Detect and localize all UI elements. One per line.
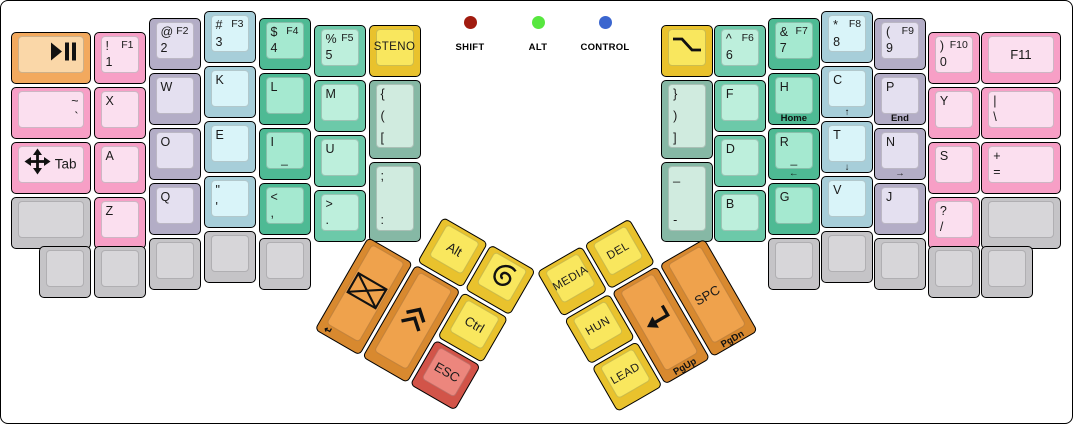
keycap-top: *F88 xyxy=(828,15,866,52)
key-legend: T xyxy=(833,129,841,142)
key-legend: ' xyxy=(216,201,218,214)
swirl-icon xyxy=(481,253,526,295)
keycap-top: HUN xyxy=(572,300,623,351)
key-i[interactable]: I_ xyxy=(259,128,311,180)
key-blank-right[interactable] xyxy=(981,197,1061,249)
key-legend: % xyxy=(326,33,337,46)
key-r[interactable]: R_← xyxy=(768,128,820,180)
key-blank-br-4[interactable] xyxy=(928,246,980,298)
key-steno[interactable]: STENO xyxy=(369,25,421,77)
key-legend: ^ xyxy=(726,33,732,46)
key-legend: + xyxy=(993,150,1000,163)
key-legend: F7 xyxy=(796,26,808,37)
key-legend: & xyxy=(780,26,788,39)
key-v[interactable]: V xyxy=(821,176,873,228)
keycap-top: X xyxy=(101,91,139,128)
key-j[interactable]: J xyxy=(874,183,926,235)
keycap-top: I_ xyxy=(266,132,304,169)
key-blank-bl-2[interactable] xyxy=(94,246,146,298)
key-legend: ? xyxy=(940,205,947,218)
key-legend: ) xyxy=(940,40,944,53)
key-z[interactable]: Z xyxy=(94,197,146,249)
key-blank-bl-4[interactable] xyxy=(204,231,256,283)
keycap-top: N xyxy=(881,132,919,169)
key-period[interactable]: >. xyxy=(314,190,366,242)
keycap-top: ^F66 xyxy=(721,29,759,66)
key-front-legend: ← xyxy=(769,169,819,179)
key-legend: V xyxy=(833,184,841,197)
homing-bar: _ xyxy=(281,153,288,165)
key-legend: H xyxy=(780,81,789,94)
keycap-top: &F77 xyxy=(775,22,813,59)
key-tilde-grave[interactable]: ~` xyxy=(11,87,91,139)
key-legend: F5 xyxy=(341,33,353,44)
key-close-brackets[interactable]: }]) xyxy=(661,80,713,160)
key-5-f5[interactable]: %F55 xyxy=(314,25,366,77)
key-p[interactable]: PEnd xyxy=(874,73,926,125)
key-legend: > xyxy=(326,198,333,211)
keycap-top xyxy=(156,242,194,279)
key-comma[interactable]: <, xyxy=(259,183,311,235)
key-legend: D xyxy=(726,143,735,156)
keycap-top: Q xyxy=(156,187,194,224)
key-legend: Y xyxy=(940,95,948,108)
key-legend: F8 xyxy=(849,19,861,30)
key-blank-br-1[interactable] xyxy=(768,238,820,290)
keycap-top xyxy=(881,242,919,279)
key-legend: K xyxy=(216,74,224,87)
key-legend: ; xyxy=(381,170,384,183)
key-w[interactable]: W xyxy=(149,73,201,125)
key-legend: MEDIA xyxy=(546,254,595,302)
key-legend: B xyxy=(726,198,734,211)
key-legend: J xyxy=(886,191,892,204)
key-plus-equals[interactable]: += xyxy=(981,142,1061,194)
control-led xyxy=(599,16,612,29)
move-icon xyxy=(24,148,51,180)
key-legend: 7 xyxy=(780,42,787,55)
key-blank-bl-1[interactable] xyxy=(39,246,91,298)
key-front-legend: ↓ xyxy=(822,163,872,173)
key-t[interactable]: T↓ xyxy=(821,121,873,173)
key-legend: * xyxy=(833,19,838,32)
keycap-top: ~` xyxy=(18,91,84,128)
key-8-f8[interactable]: *F88 xyxy=(821,11,873,63)
key-u[interactable]: U xyxy=(314,135,366,187)
key-l[interactable]: L xyxy=(259,73,311,125)
key-blank-bl-5[interactable] xyxy=(259,238,311,290)
key-legend: " xyxy=(216,184,220,197)
key-blank-bl-3[interactable] xyxy=(149,238,201,290)
keycap-top: J xyxy=(881,187,919,224)
key-legend: $ xyxy=(271,26,278,39)
keycap-top: <, xyxy=(266,187,304,224)
keycap-top: (F99 xyxy=(881,22,919,59)
key-h[interactable]: HHome xyxy=(768,73,820,125)
key-legend: @ xyxy=(161,26,174,39)
shift-led-label: SHIFT xyxy=(435,42,505,53)
keycap-top: Ctrl xyxy=(449,299,500,350)
key-legend: ESC xyxy=(423,348,472,396)
key-legend: , xyxy=(271,207,274,220)
key-legend: . xyxy=(326,214,329,227)
key-legend: F2 xyxy=(176,26,188,37)
key-legend: G xyxy=(780,191,790,204)
key-legend: R xyxy=(780,136,789,149)
key-pipe-backslash[interactable]: |\ xyxy=(981,87,1061,139)
key-legend: ! xyxy=(106,40,109,53)
keycap-top: P xyxy=(881,77,919,114)
key-legend: ( xyxy=(886,26,890,39)
key-legend: - xyxy=(673,214,677,227)
key-legend: 4 xyxy=(271,42,278,55)
key-legend: I xyxy=(271,136,274,149)
keycap-top: R_ xyxy=(775,132,813,169)
keycap-top xyxy=(476,251,527,302)
key-blank-br-2[interactable] xyxy=(821,231,873,283)
keycap-top: H xyxy=(775,77,813,114)
key-e[interactable]: E xyxy=(204,121,256,173)
shift-led xyxy=(464,16,477,29)
key-2-f2[interactable]: @F22 xyxy=(149,18,201,70)
keycap-top: @F22 xyxy=(156,22,194,59)
homing-bar: _ xyxy=(790,153,797,165)
keycap-top: !F11 xyxy=(101,36,139,73)
indicator-control: CONTROL xyxy=(570,16,640,53)
keycap-top: M xyxy=(321,84,359,121)
key-front-legend: ↑ xyxy=(822,108,872,118)
key-legend: F6 xyxy=(742,33,754,44)
keycap-top: G xyxy=(775,187,813,224)
key-legend: } xyxy=(673,88,677,101)
keycap-top xyxy=(18,36,84,73)
key-legend: E xyxy=(216,129,224,142)
key-legend: DEL xyxy=(594,227,643,275)
key-m[interactable]: M xyxy=(314,80,366,132)
key-legend: X xyxy=(106,95,114,108)
keycap-top xyxy=(46,250,84,287)
alt-led-label: ALT xyxy=(503,42,573,53)
option-icon xyxy=(669,30,705,58)
keycap-top: {[( xyxy=(376,84,414,149)
key-g[interactable]: G xyxy=(768,183,820,235)
control-led-label: CONTROL xyxy=(570,42,640,53)
keycap-top xyxy=(935,250,973,287)
key-legend: | xyxy=(993,95,996,108)
key-n[interactable]: N→ xyxy=(874,128,926,180)
keycap-top xyxy=(828,235,866,272)
keycap-top: C xyxy=(828,70,866,107)
key-legend: 2 xyxy=(161,42,168,55)
key-d[interactable]: D xyxy=(714,135,766,187)
key-legend: C xyxy=(833,74,842,87)
keycap-top: O xyxy=(156,132,194,169)
key-legend: 1 xyxy=(106,56,113,69)
indicator-shift: SHIFT xyxy=(435,16,505,53)
keycap-top xyxy=(101,250,139,287)
key-blank-br-5[interactable] xyxy=(981,246,1033,298)
key-f11[interactable]: F11 xyxy=(981,32,1061,84)
keycap-top: D xyxy=(721,139,759,176)
key-legend: Z xyxy=(106,205,114,218)
keycap-top: Tab xyxy=(18,146,84,183)
keycap-top xyxy=(775,242,813,279)
keycap-top: A xyxy=(101,146,139,183)
key-legend: U xyxy=(326,143,335,156)
keycap-top: L xyxy=(266,77,304,114)
keycap-top: )F100 xyxy=(935,36,973,73)
keycap-top: STENO xyxy=(376,29,414,66)
key-a[interactable]: A xyxy=(94,142,146,194)
key-tab[interactable]: Tab xyxy=(11,142,91,194)
key-legend: N xyxy=(886,136,895,149)
key-1-f1[interactable]: !F11 xyxy=(94,32,146,84)
keycap-top: K xyxy=(211,70,249,107)
key-f[interactable]: F xyxy=(714,80,766,132)
key-legend: ( xyxy=(381,110,385,123)
keycap-top: W xyxy=(156,77,194,114)
key-3-f3[interactable]: #F33 xyxy=(204,11,256,63)
key-legend: O xyxy=(161,136,171,149)
key-legend: ] xyxy=(673,132,676,145)
key-front-legend: → xyxy=(875,169,925,179)
key-legend: 8 xyxy=(833,36,840,49)
key-legend: # xyxy=(216,19,223,32)
key-legend: 5 xyxy=(326,49,333,62)
keycap-top: |\ xyxy=(988,91,1054,128)
key-legend: Ctrl xyxy=(450,300,499,348)
keycap-top: F11 xyxy=(988,36,1054,73)
keycap-top xyxy=(266,242,304,279)
key-s[interactable]: S xyxy=(928,142,980,194)
key-9-f9[interactable]: (F99 xyxy=(874,18,926,70)
key-legend: : xyxy=(381,214,384,227)
keycap-top: _- xyxy=(668,166,706,231)
key-legend: M xyxy=(326,88,336,101)
key-legend: < xyxy=(271,191,278,204)
key-legend: / xyxy=(940,221,943,234)
key-legend: 6 xyxy=(726,49,733,62)
key-legend: F1 xyxy=(121,40,133,51)
keycap-top xyxy=(211,235,249,272)
key-k[interactable]: K xyxy=(204,66,256,118)
keyboard: SHIFTALTCONTROL !F11@F22#F33$F44%F55STEN… xyxy=(0,0,1073,424)
keycap-top: MEDIA xyxy=(545,253,596,304)
key-0-f10[interactable]: )F100 xyxy=(928,32,980,84)
key-legend: W xyxy=(161,81,173,94)
key-option[interactable] xyxy=(661,25,713,77)
key-legend: 0 xyxy=(940,56,947,69)
keycap-top: LEAD xyxy=(600,348,651,399)
key-legend: ) xyxy=(673,110,677,123)
key-blank-left[interactable] xyxy=(11,197,91,249)
keycap-top: ?/ xyxy=(935,201,973,238)
key-quote[interactable]: "' xyxy=(204,176,256,228)
keycap-top: %F55 xyxy=(321,29,359,66)
keycap-top: Alt xyxy=(429,224,480,275)
key-legend: F4 xyxy=(286,26,298,37)
key-legend: ~ xyxy=(71,95,78,108)
keycap-top: E xyxy=(211,125,249,162)
key-legend: = xyxy=(993,166,1000,179)
key-4-f4[interactable]: $F44 xyxy=(259,18,311,70)
key-legend: ` xyxy=(74,111,78,124)
key-x[interactable]: X xyxy=(94,87,146,139)
key-legend: F9 xyxy=(902,26,914,37)
key-legend: [ xyxy=(381,132,384,145)
key-y[interactable]: Y xyxy=(928,87,980,139)
key-legend: _ xyxy=(673,170,680,183)
key-legend: F3 xyxy=(231,19,243,30)
key-6-f6[interactable]: ^F66 xyxy=(714,25,766,77)
play-pause-icon xyxy=(48,41,78,68)
keycap-top: $F44 xyxy=(266,22,304,59)
keycap-top: >. xyxy=(321,194,359,231)
key-legend: F11 xyxy=(989,37,1053,72)
keycap-top: #F33 xyxy=(211,15,249,52)
key-legend: LEAD xyxy=(601,349,650,397)
keycap-top xyxy=(18,201,84,238)
key-7-f7[interactable]: &F77 xyxy=(768,18,820,70)
key-semicolon-colon[interactable]: ;: xyxy=(369,162,421,242)
keycap-top: U xyxy=(321,139,359,176)
key-question-slash[interactable]: ?/ xyxy=(928,197,980,249)
key-underscore-dash[interactable]: _- xyxy=(661,162,713,242)
key-legend: Tab xyxy=(55,157,77,171)
key-front-legend: Home xyxy=(769,114,819,124)
keycap-top: DEL xyxy=(592,225,643,276)
indicator-alt: ALT xyxy=(503,16,573,53)
key-o[interactable]: O xyxy=(149,128,201,180)
key-b[interactable]: B xyxy=(714,190,766,242)
key-legend: Q xyxy=(161,191,171,204)
keycap-top: "' xyxy=(211,180,249,217)
key-legend: P xyxy=(886,81,894,94)
key-legend: HUN xyxy=(574,302,623,350)
key-q[interactable]: Q xyxy=(149,183,201,235)
keycap-top: Y xyxy=(935,91,973,128)
keycap-top: V xyxy=(828,180,866,217)
keycap-top: ESC xyxy=(421,347,472,398)
key-legend: F xyxy=(726,88,734,101)
key-legend: { xyxy=(381,88,385,101)
keycap-top: Z xyxy=(101,201,139,238)
keycap-top: ;: xyxy=(376,166,414,231)
key-legend: L xyxy=(271,81,278,94)
keycap-top: T xyxy=(828,125,866,162)
key-legend: 9 xyxy=(886,42,893,55)
key-legend: F10 xyxy=(950,40,968,51)
key-legend: Alt xyxy=(430,225,479,273)
keycap-top: F xyxy=(721,84,759,121)
keycap-top xyxy=(668,29,706,66)
keycap-top: }]) xyxy=(668,84,706,149)
key-front-legend: End xyxy=(875,114,925,124)
key-legend: S xyxy=(940,150,948,163)
keycap-top xyxy=(988,250,1026,287)
key-legend: \ xyxy=(993,111,996,124)
key-legend: A xyxy=(106,150,114,163)
key-blank-br-3[interactable] xyxy=(874,238,926,290)
key-open-brackets[interactable]: {[( xyxy=(369,80,421,160)
key-legend: 3 xyxy=(216,36,223,49)
keycap-top: += xyxy=(988,146,1054,183)
key-c[interactable]: C↑ xyxy=(821,66,873,118)
keycap-top xyxy=(988,201,1054,238)
keycap-top: B xyxy=(721,194,759,231)
key-legend: STENO xyxy=(377,30,413,65)
keycap-top: S xyxy=(935,146,973,183)
alt-led xyxy=(532,16,545,29)
key-play-pause[interactable] xyxy=(11,32,91,84)
